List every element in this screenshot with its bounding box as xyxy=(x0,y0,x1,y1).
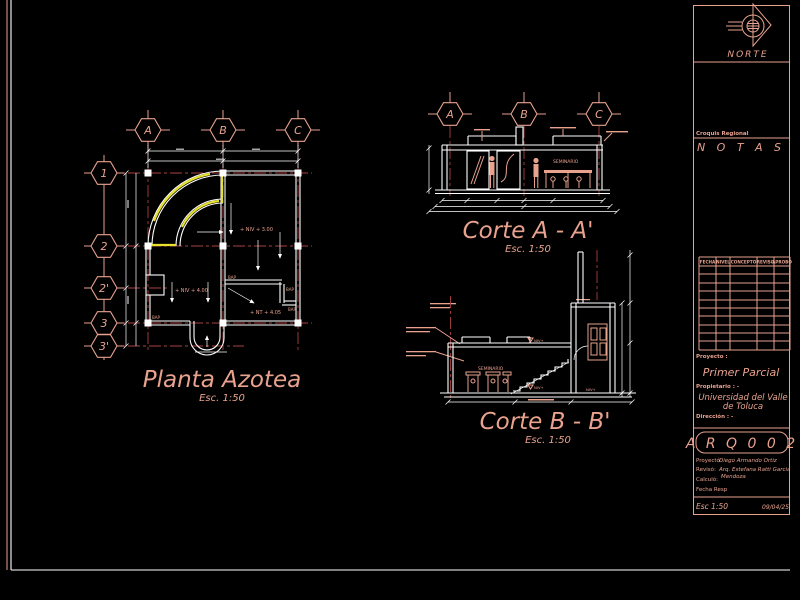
grid-bubble-3p: 3' xyxy=(99,340,109,353)
grid-bubble-b: B xyxy=(219,124,227,137)
corte-a-scale: Esc. 1:50 xyxy=(505,244,551,255)
reviewed-label: Revisó: xyxy=(696,466,716,473)
room-label: SEMINARIO xyxy=(478,366,504,372)
project-value: Primer Parcial xyxy=(703,366,780,379)
drain-label: BAP xyxy=(152,315,160,320)
rev-col-concepto: CONCEPTO xyxy=(731,260,757,265)
level-annotation: + NIV + 4.00 xyxy=(175,288,208,294)
sheet-border xyxy=(7,0,790,570)
planta-title: Planta Azotea xyxy=(143,367,302,393)
grid-bubble-a: A xyxy=(143,124,152,137)
croquis-label: Croquis Regional xyxy=(696,131,749,137)
rev-col-aprobo: APROBO xyxy=(772,260,792,265)
address-label: Dirección : - xyxy=(696,413,733,420)
calculated-label: Calculó: xyxy=(696,476,718,483)
level-mark: NIV+ xyxy=(586,387,596,392)
corte-a-dimensions xyxy=(427,145,620,214)
corte-a-structure xyxy=(435,127,610,194)
scale-label: Esc 1:50 xyxy=(696,502,728,511)
designed-value: Diego Armando Ortiz xyxy=(719,458,777,464)
revision-table: FECHA NIVEL CONCEPTO REVISO APROBO xyxy=(699,257,792,350)
reviewed-value-line1: Arq. Estefana Ratti Garcia xyxy=(718,467,791,473)
level-mark: NIV+ xyxy=(534,338,544,343)
project-info: Proyecto : Primer Parcial Propietario : … xyxy=(685,354,798,453)
project-label: Proyecto : xyxy=(696,354,728,360)
corte-b-furniture: SEMINARIO xyxy=(466,366,511,392)
owner-label: Propietario : - xyxy=(696,384,739,390)
grid-bubble-c: C xyxy=(595,108,603,121)
north-label: NORTE xyxy=(727,50,768,60)
sheet-code: A R Q 0 0 2 xyxy=(685,436,798,452)
rev-col-nivel: NIVEL xyxy=(716,260,730,265)
corte-b: SEMINARIO NIV+ NIV+ NIV+ Corte B - B' Es… xyxy=(406,250,636,446)
corte-a-notes xyxy=(474,127,628,141)
corte-b-title: Corte B - B' xyxy=(480,409,611,435)
planta-azotea: + NIV + 3.00 + NIV + 4.00 + NT + 4.05 BA… xyxy=(84,110,320,404)
drain-label: BAP xyxy=(288,307,296,312)
cad-drawing: + NIV + 3.00 + NIV + 4.00 + NT + 4.05 BA… xyxy=(0,0,800,600)
planta-grid-lines xyxy=(84,110,320,360)
person-figure xyxy=(489,156,494,161)
date-resp-label: Fecha Resp xyxy=(696,487,728,493)
rev-col-fecha: FECHA xyxy=(700,260,716,265)
level-mark: NIV+ xyxy=(534,385,544,390)
room-label: SEMINARIO xyxy=(553,159,579,165)
planta-annotations: + NIV + 3.00 + NIV + 4.00 + NT + 4.05 BA… xyxy=(152,227,296,320)
corte-a: A B C xyxy=(427,92,629,255)
grid-bubble-2p: 2' xyxy=(99,282,109,295)
level-annotation: + NIV + 3.00 xyxy=(240,227,273,233)
drain-label: BAP xyxy=(286,287,294,292)
grid-bubble-3: 3 xyxy=(101,317,108,330)
corte-b-dimensions xyxy=(446,250,635,405)
table xyxy=(544,170,592,173)
notes-title: N O T A S xyxy=(697,141,785,154)
cad-sheet: + NIV + 3.00 + NIV + 4.00 + NT + 4.05 BA… xyxy=(0,0,800,600)
planta-scale: Esc. 1:50 xyxy=(199,393,245,404)
corte-a-grid: A B C xyxy=(428,92,621,196)
grid-bubble-b: B xyxy=(520,108,528,121)
title-block: NORTE Croquis Regional N O T A S FECHA xyxy=(685,4,798,515)
grid-bubble-1: 1 xyxy=(101,167,108,180)
owner-value-line2: de Toluca xyxy=(723,402,763,412)
reviewed-value-line2: Mendoza xyxy=(721,474,746,480)
grid-bubble-c: C xyxy=(294,124,302,137)
grid-bubble-a: A xyxy=(445,108,454,121)
grid-bubble-2: 2 xyxy=(101,240,108,253)
person-figure xyxy=(533,158,538,163)
corte-a-people-furniture: SEMINARIO xyxy=(489,156,592,188)
north-arrow: NORTE xyxy=(726,4,771,60)
drain-label: BAP xyxy=(228,275,236,280)
date-value: 09/04/25 xyxy=(762,504,789,511)
level-annotation: + NT + 4.05 xyxy=(250,310,281,316)
corte-b-scale: Esc. 1:50 xyxy=(525,435,571,446)
credits: Proyectó: Diego Armando Ortiz Revisó: Ar… xyxy=(694,457,792,511)
corte-b-structure xyxy=(440,250,636,399)
corte-a-title: Corte A - A' xyxy=(463,218,594,244)
